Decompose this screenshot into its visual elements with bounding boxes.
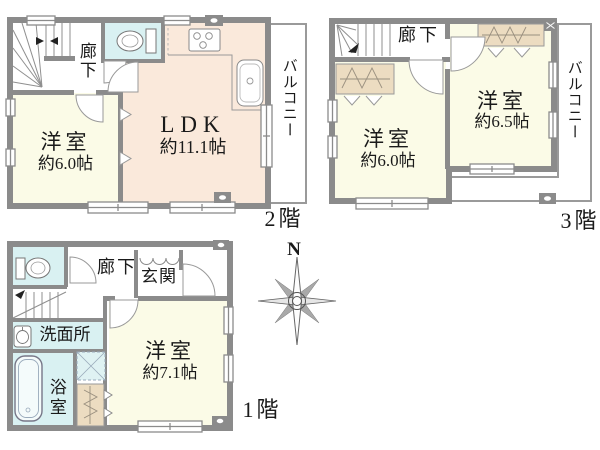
floor-3-plan (328, 20, 591, 209)
compass-north-label: N (280, 240, 308, 260)
floor-label-3f: 3階 (556, 209, 600, 232)
meter-box (539, 193, 556, 204)
floorplan-page: 廊下 LDK 約11.1帖 洋室 約6.0帖 バルコニー 2階 廊下 洋室 約6… (0, 0, 600, 450)
corridor-label-3f: 廊下 (396, 26, 442, 45)
western-room-size-2f: 約6.0帖 (23, 155, 108, 173)
washer-pan-icon (77, 352, 105, 380)
bathtub-icon (15, 356, 42, 421)
washroom-label: 洗面所 (33, 326, 97, 344)
entrance-label: 玄関 (138, 268, 180, 286)
western-room-label-3f-a: 洋室 (348, 128, 428, 150)
corridor-label-1f: 廊下 (92, 258, 142, 277)
toilet-icon (16, 258, 50, 279)
western-room-label-2f: 洋室 (23, 131, 108, 153)
kitchen-stove-icon (189, 29, 220, 51)
western-room-size-1f: 約7.1帖 (130, 364, 210, 382)
ldk-label: LDK (143, 113, 243, 137)
meter-box (544, 20, 557, 31)
compass-rose-icon (258, 257, 336, 345)
western-room-label-1f: 洋室 (130, 340, 210, 362)
ldk-size-label: 約11.1帖 (143, 138, 243, 157)
toilet-icon (117, 29, 156, 53)
washbasin-icon (14, 326, 31, 347)
floor-label-2f: 2階 (258, 207, 310, 230)
western-room-label-3f-b: 洋室 (462, 90, 542, 112)
kitchen-sink-icon (237, 60, 263, 106)
western-room-size-3f-b: 約6.5帖 (462, 113, 542, 131)
bathroom-label: 浴室 (47, 378, 65, 418)
balcony-label-2f: バルコニー (280, 58, 296, 138)
balcony-label-3f: バルコニー (565, 60, 581, 140)
corridor-label-2f: 廊下 (77, 42, 95, 80)
western-room-size-3f-a: 約6.0帖 (348, 152, 428, 170)
floor-label-1f: 1階 (236, 398, 288, 421)
